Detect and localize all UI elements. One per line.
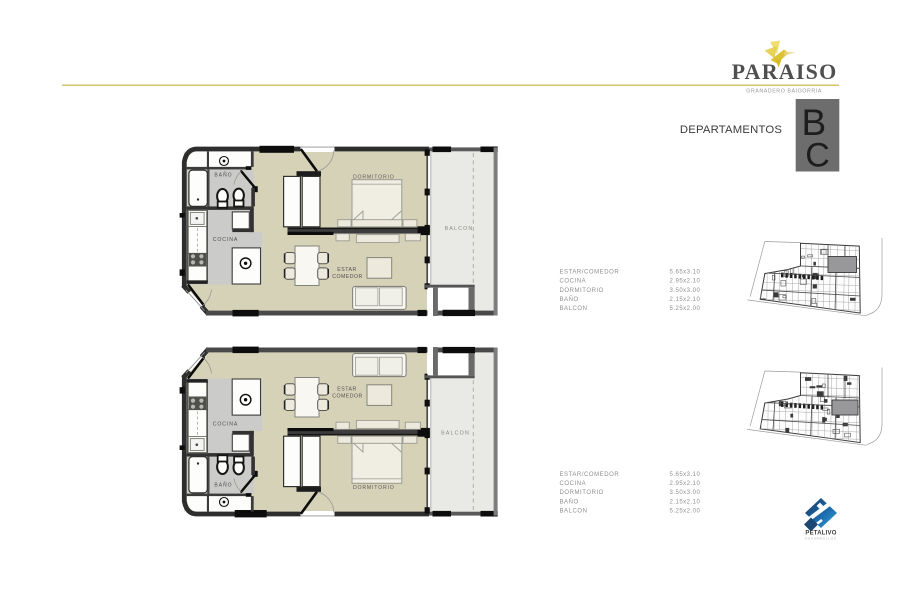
svg-text:2.15x2.10: 2.15x2.10 — [670, 297, 701, 303]
svg-text:COMEDOR: COMEDOR — [332, 274, 363, 280]
svg-text:DORMITORIO: DORMITORIO — [353, 485, 395, 491]
svg-text:ESTAR/COMEDOR: ESTAR/COMEDOR — [560, 270, 620, 276]
svg-text:5.65x3.10: 5.65x3.10 — [670, 270, 701, 276]
svg-text:2.95x2.10: 2.95x2.10 — [670, 481, 701, 487]
svg-text:DEPARTAMENTOS: DEPARTAMENTOS — [680, 124, 782, 136]
svg-text:BAÑO: BAÑO — [560, 296, 579, 303]
svg-text:DORMITORIO: DORMITORIO — [560, 288, 604, 294]
svg-text:3.50x3.00: 3.50x3.00 — [670, 490, 701, 496]
svg-text:COCINA: COCINA — [213, 237, 239, 243]
svg-text:ESTAR: ESTAR — [337, 386, 356, 392]
svg-text:BAÑO: BAÑO — [560, 498, 579, 505]
svg-text:DESARROLLOS: DESARROLLOS — [805, 536, 837, 540]
svg-text:5.25x2.00: 5.25x2.00 — [670, 306, 701, 312]
svg-text:5.25x2.00: 5.25x2.00 — [670, 508, 701, 514]
svg-text:GRANADERO BAIGORRIA: GRANADERO BAIGORRIA — [746, 89, 822, 95]
svg-text:COCINA: COCINA — [560, 279, 587, 285]
svg-text:BALCON: BALCON — [441, 431, 470, 437]
svg-text:COCINA: COCINA — [213, 422, 239, 428]
svg-text:DORMITORIO: DORMITORIO — [353, 175, 395, 181]
svg-text:5.65x3.10: 5.65x3.10 — [670, 472, 701, 478]
svg-text:BALCON: BALCON — [560, 306, 588, 312]
svg-text:2.95x2.10: 2.95x2.10 — [670, 279, 701, 285]
svg-text:COCINA: COCINA — [560, 481, 587, 487]
svg-text:ESTAR/COMEDOR: ESTAR/COMEDOR — [560, 472, 620, 478]
svg-text:ESTAR: ESTAR — [337, 267, 356, 273]
svg-text:2.15x2.10: 2.15x2.10 — [670, 499, 701, 505]
svg-text:COMEDOR: COMEDOR — [332, 394, 363, 400]
svg-text:C: C — [805, 137, 830, 175]
svg-text:BAÑO: BAÑO — [214, 171, 232, 178]
svg-text:BALCON: BALCON — [560, 508, 588, 514]
svg-text:DORMITORIO: DORMITORIO — [560, 490, 604, 496]
svg-text:3.50x3.00: 3.50x3.00 — [670, 288, 701, 294]
svg-text:PARAISO: PARAISO — [732, 59, 838, 84]
svg-text:BALCON: BALCON — [445, 226, 474, 232]
svg-text:BAÑO: BAÑO — [214, 482, 232, 489]
